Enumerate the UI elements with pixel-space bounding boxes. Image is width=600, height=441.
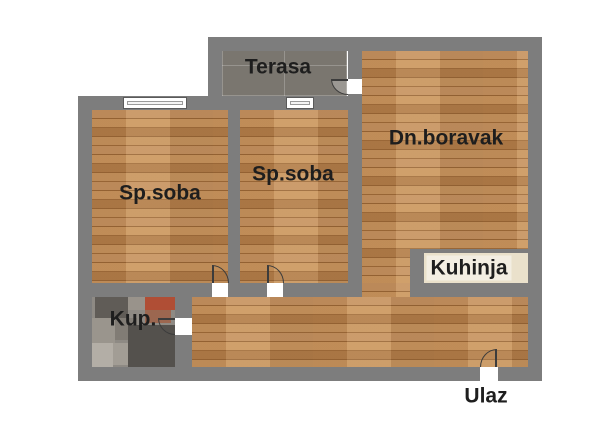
living-hall-connector-floor (362, 283, 410, 297)
wall-top (78, 96, 362, 110)
living-room-label: Dn.boravak (389, 128, 503, 149)
bathroom-door-gap (175, 318, 192, 335)
bathroom-tile (90, 343, 113, 367)
bedroom2-floor (240, 110, 348, 283)
hallway-floor (192, 297, 528, 367)
bedroom2-window-icon (286, 97, 314, 109)
entrance-label: Ulaz (464, 386, 507, 407)
window-pane (290, 101, 310, 105)
bathroom-floor (90, 295, 175, 367)
entrance-door-gap (480, 367, 498, 381)
bathroom-tile (113, 343, 128, 365)
bedroom2-door-gap (267, 283, 283, 297)
kitchen-label: Kuhinja (427, 256, 512, 281)
bedroom2-label: Sp.soba (252, 164, 334, 185)
wall-left (78, 96, 92, 381)
bedroom1-door-gap (212, 283, 228, 297)
wall-terrace-left (208, 37, 222, 96)
terrace-label: Terasa (245, 57, 311, 78)
bathroom-label: Kup. (110, 309, 157, 330)
terrace-door-gap (348, 79, 362, 94)
bedroom1-label: Sp.soba (119, 183, 201, 204)
bedroom1-window-icon (123, 97, 187, 109)
wall-terrace-top (208, 37, 542, 51)
floor-plan: Terasa Sp.soba Sp.soba Dn.boravak Kuhinj… (0, 0, 600, 441)
wall-right (528, 37, 542, 381)
wall-bedroom-divider (228, 110, 240, 297)
wall-bottom (78, 367, 542, 381)
window-pane (127, 101, 183, 105)
